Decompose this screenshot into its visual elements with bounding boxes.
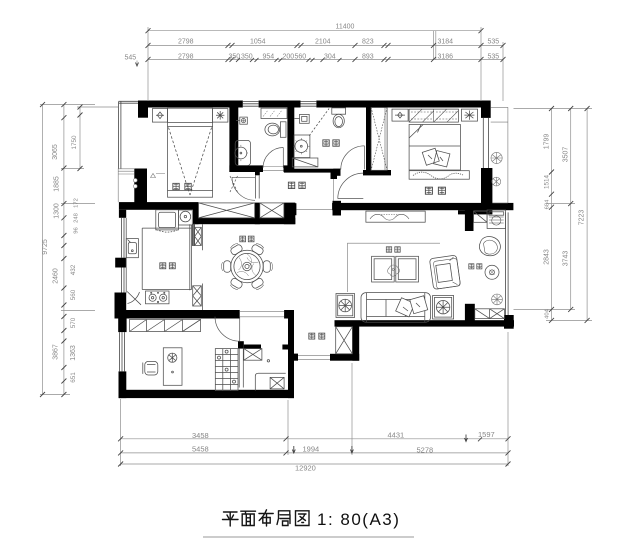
- svg-text:3184: 3184: [438, 38, 454, 45]
- svg-text:96: 96: [74, 227, 80, 233]
- svg-text:823: 823: [362, 38, 374, 45]
- svg-text:1054: 1054: [250, 38, 266, 45]
- svg-text:1799: 1799: [544, 134, 551, 150]
- svg-text:651: 651: [70, 372, 77, 383]
- svg-text:2460: 2460: [53, 268, 60, 284]
- svg-text:1: 80(A3): 1: 80(A3): [317, 510, 400, 529]
- svg-text:3743: 3743: [563, 251, 570, 267]
- svg-text:954: 954: [263, 53, 275, 60]
- svg-text:7223: 7223: [579, 210, 586, 226]
- svg-text:11400: 11400: [336, 24, 355, 31]
- svg-text:535: 535: [488, 38, 500, 45]
- svg-text:3458: 3458: [192, 431, 209, 440]
- svg-text:1514: 1514: [544, 175, 551, 190]
- svg-text:1994: 1994: [303, 444, 320, 453]
- svg-text:3507: 3507: [563, 147, 570, 163]
- svg-text:684: 684: [545, 199, 551, 209]
- svg-text:5278: 5278: [417, 446, 434, 455]
- svg-text:3065: 3065: [52, 144, 59, 160]
- svg-text:1300: 1300: [54, 203, 61, 219]
- svg-text:248: 248: [74, 213, 80, 223]
- svg-text:5458: 5458: [192, 444, 209, 453]
- svg-text:893: 893: [362, 53, 374, 60]
- svg-text:535: 535: [488, 53, 500, 60]
- svg-text:1750: 1750: [71, 135, 78, 150]
- svg-text:350: 350: [241, 53, 253, 60]
- svg-text:1597: 1597: [478, 430, 495, 439]
- svg-text:1363: 1363: [70, 345, 77, 361]
- svg-text:404: 404: [545, 308, 551, 318]
- svg-text:570: 570: [70, 317, 77, 328]
- svg-text:9725: 9725: [42, 239, 49, 255]
- svg-text:2798: 2798: [178, 53, 194, 60]
- svg-text:2798: 2798: [178, 38, 194, 45]
- svg-text:432: 432: [70, 264, 77, 275]
- svg-text:545: 545: [125, 55, 137, 62]
- svg-text:2104: 2104: [315, 38, 331, 45]
- svg-text:1885: 1885: [54, 176, 61, 192]
- svg-text:200: 200: [283, 53, 295, 60]
- svg-text:3867: 3867: [53, 344, 60, 360]
- svg-text:560: 560: [70, 289, 77, 300]
- svg-text:304: 304: [324, 53, 336, 60]
- svg-text:3186: 3186: [438, 53, 454, 60]
- svg-text:12920: 12920: [295, 464, 316, 473]
- svg-text:2843: 2843: [544, 249, 551, 265]
- svg-text:560: 560: [295, 53, 307, 60]
- svg-text:350: 350: [229, 53, 241, 60]
- svg-text:172: 172: [74, 198, 80, 208]
- svg-text:4431: 4431: [388, 430, 405, 439]
